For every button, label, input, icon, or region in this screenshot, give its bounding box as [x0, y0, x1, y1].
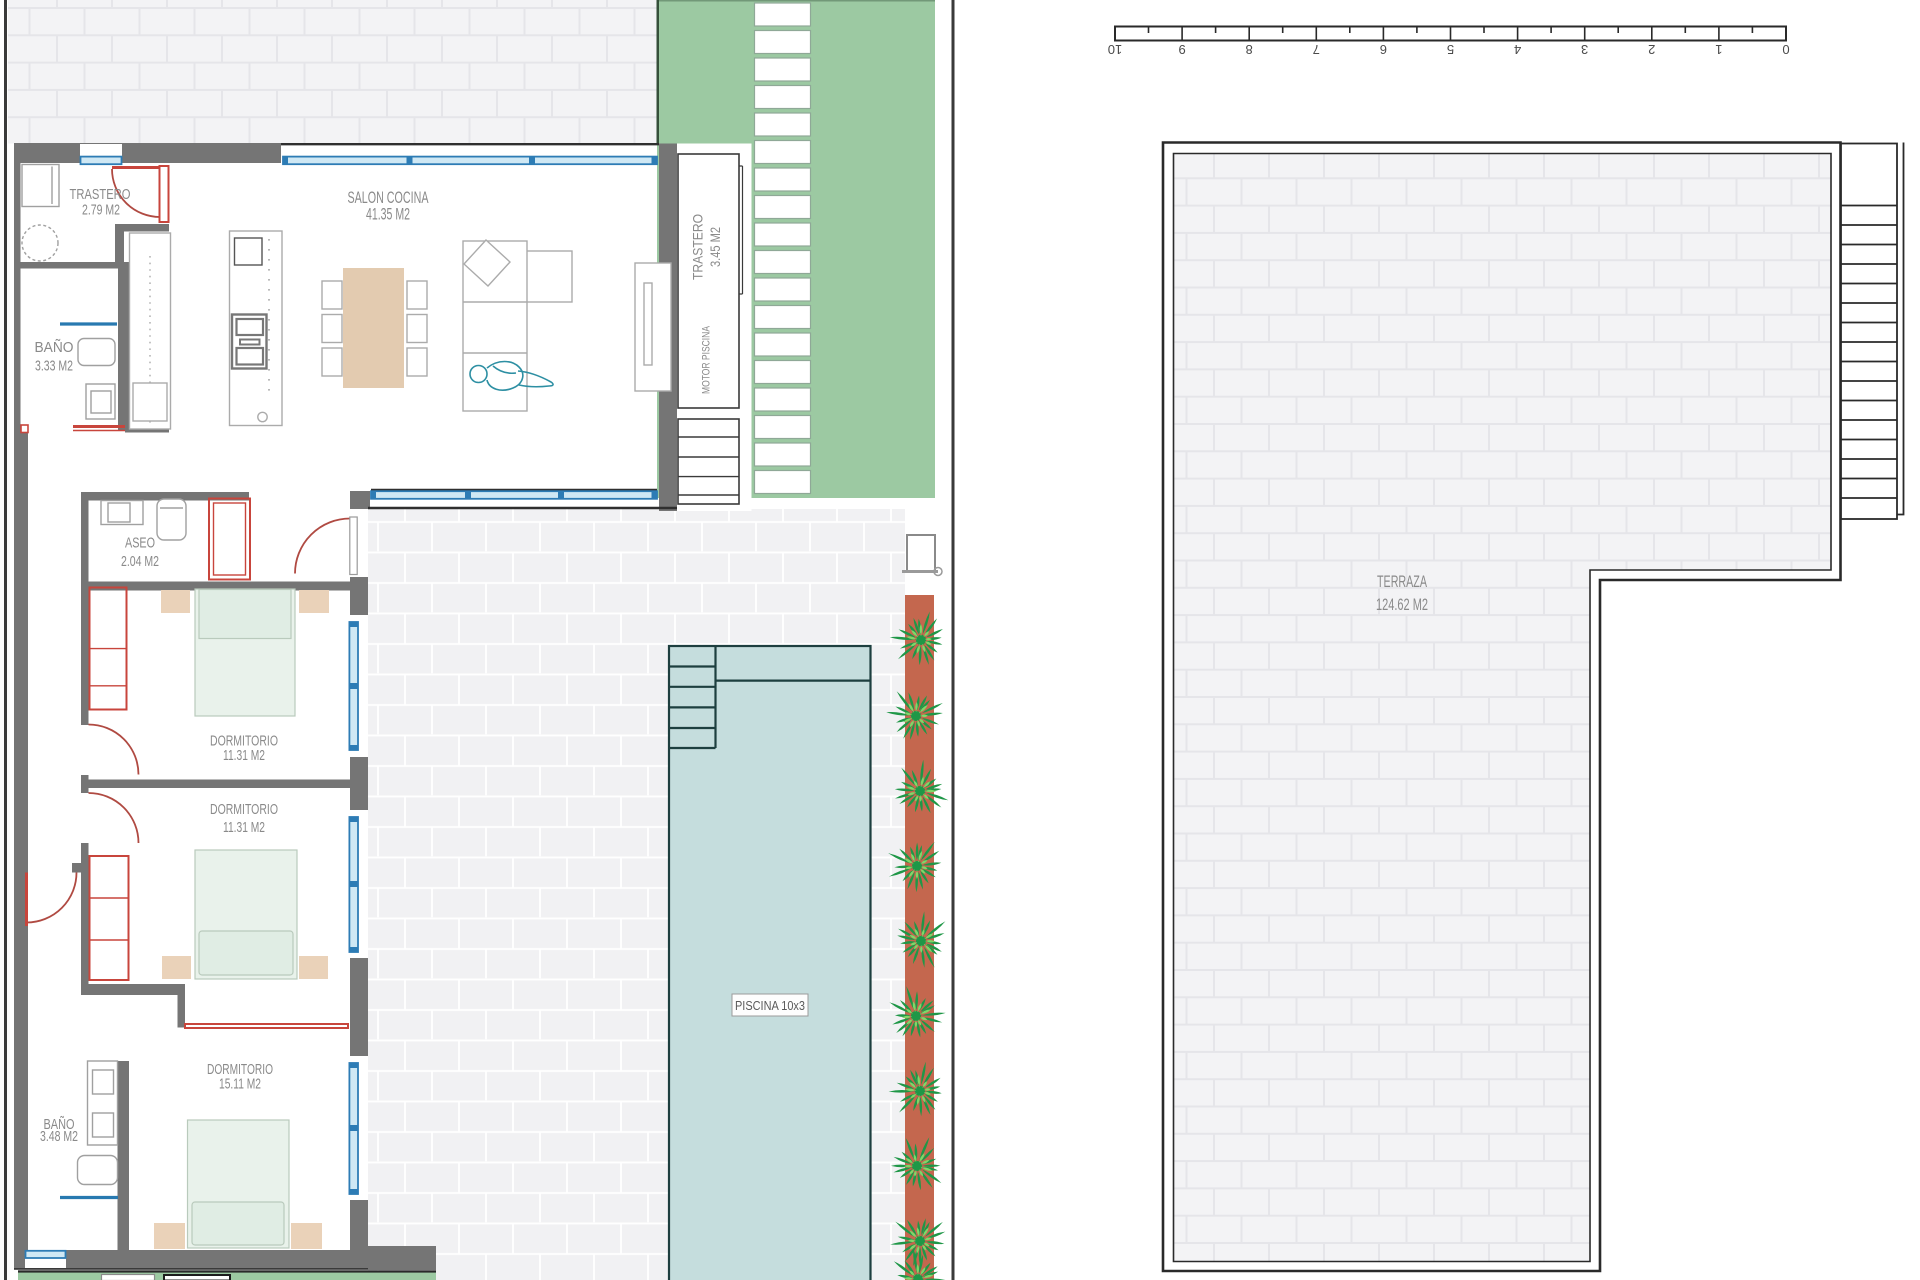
svg-text:4: 4	[1514, 42, 1521, 57]
svg-text:1: 1	[1715, 42, 1722, 57]
svg-text:9: 9	[1178, 42, 1185, 57]
svg-text:3.33 M2: 3.33 M2	[35, 358, 73, 375]
svg-text:2: 2	[1648, 42, 1655, 57]
svg-text:TRASTERO: TRASTERO	[690, 214, 706, 280]
svg-text:2.79 M2: 2.79 M2	[82, 202, 120, 219]
svg-text:ASEO: ASEO	[125, 535, 155, 552]
svg-text:TRASTERO: TRASTERO	[70, 186, 131, 203]
svg-text:8: 8	[1246, 42, 1253, 57]
svg-text:2.04 M2: 2.04 M2	[121, 553, 159, 570]
svg-text:15.11 M2: 15.11 M2	[219, 1076, 261, 1093]
svg-text:3: 3	[1581, 42, 1588, 57]
svg-text:6: 6	[1380, 42, 1387, 57]
svg-text:0: 0	[1782, 42, 1789, 57]
svg-text:7: 7	[1313, 42, 1320, 57]
svg-text:41.35 M2: 41.35 M2	[366, 205, 410, 224]
svg-text:5: 5	[1447, 42, 1454, 57]
svg-text:TERRAZA: TERRAZA	[1377, 572, 1427, 591]
svg-text:11.31 M2: 11.31 M2	[223, 819, 265, 836]
svg-text:11.31 M2: 11.31 M2	[223, 747, 265, 764]
svg-text:124.62 M2: 124.62 M2	[1376, 595, 1428, 614]
svg-text:DORMITORIO: DORMITORIO	[210, 801, 278, 818]
svg-text:10: 10	[1108, 42, 1122, 57]
svg-text:3.45 M2: 3.45 M2	[707, 227, 723, 267]
svg-text:3.48 M2: 3.48 M2	[40, 1128, 78, 1145]
svg-text:PISCINA 10x3: PISCINA 10x3	[735, 998, 805, 1013]
svg-text:BAÑO: BAÑO	[35, 339, 74, 356]
svg-text:MOTOR PISCINA: MOTOR PISCINA	[701, 325, 713, 394]
